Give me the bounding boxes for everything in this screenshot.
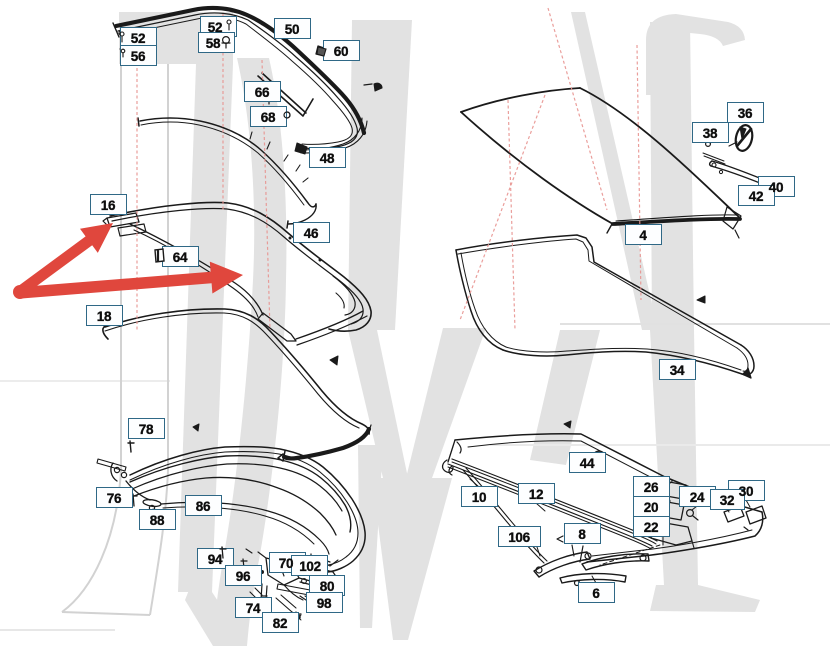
svg-text:106: 106 (508, 530, 530, 545)
svg-text:22: 22 (644, 520, 658, 535)
svg-text:70: 70 (279, 556, 293, 571)
svg-text:24: 24 (690, 490, 705, 505)
svg-text:32: 32 (720, 493, 734, 508)
svg-text:46: 46 (304, 226, 319, 241)
svg-text:66: 66 (255, 85, 270, 100)
svg-text:102: 102 (299, 559, 321, 574)
svg-text:42: 42 (749, 189, 763, 204)
svg-text:98: 98 (317, 596, 332, 611)
svg-text:40: 40 (769, 180, 783, 195)
svg-text:96: 96 (236, 569, 251, 584)
svg-text:82: 82 (273, 616, 287, 631)
svg-text:94: 94 (208, 552, 223, 567)
svg-text:16: 16 (101, 198, 116, 213)
svg-text:4: 4 (639, 228, 647, 243)
svg-text:10: 10 (472, 490, 486, 505)
svg-text:6: 6 (592, 586, 600, 601)
svg-text:64: 64 (173, 250, 188, 265)
svg-text:88: 88 (150, 513, 165, 528)
svg-text:30: 30 (739, 484, 753, 499)
svg-text:78: 78 (139, 422, 154, 437)
svg-text:50: 50 (285, 22, 299, 37)
svg-text:74: 74 (246, 601, 261, 616)
svg-text:44: 44 (580, 456, 595, 471)
svg-text:52: 52 (208, 20, 222, 35)
svg-text:76: 76 (107, 491, 122, 506)
svg-text:86: 86 (196, 499, 211, 514)
svg-text:48: 48 (320, 151, 335, 166)
svg-text:56: 56 (131, 49, 146, 64)
svg-text:80: 80 (320, 579, 334, 594)
svg-text:68: 68 (261, 110, 276, 125)
svg-text:18: 18 (97, 309, 112, 324)
svg-text:26: 26 (644, 480, 659, 495)
svg-text:52: 52 (131, 31, 145, 46)
svg-text:8: 8 (578, 527, 586, 542)
svg-text:38: 38 (703, 126, 718, 141)
svg-text:20: 20 (644, 500, 658, 515)
svg-text:36: 36 (738, 106, 753, 121)
svg-text:12: 12 (529, 487, 543, 502)
svg-text:34: 34 (670, 363, 685, 378)
svg-text:58: 58 (206, 36, 221, 51)
svg-text:60: 60 (334, 44, 348, 59)
